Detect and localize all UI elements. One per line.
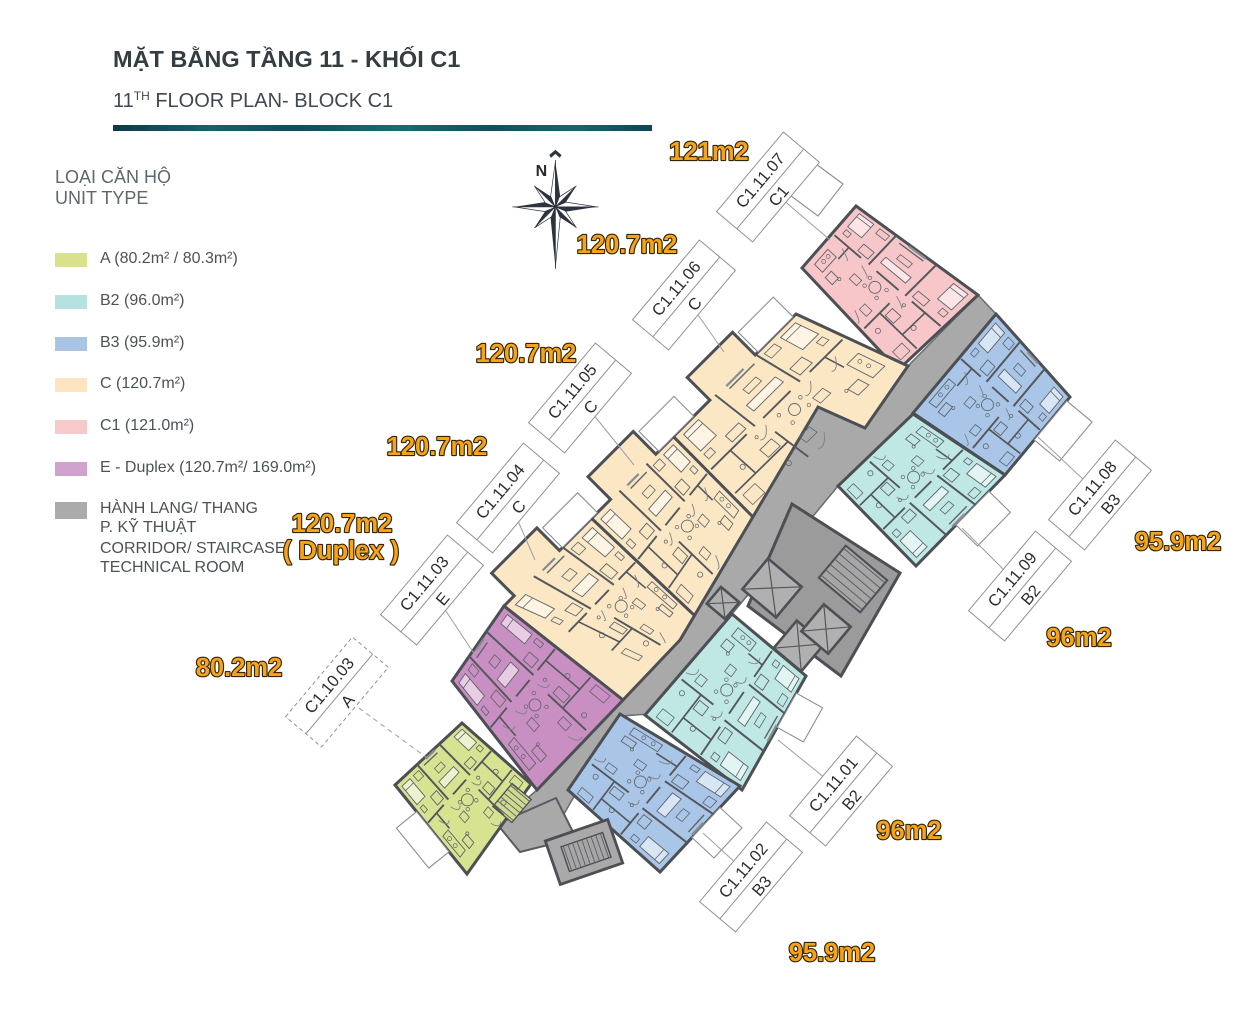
svg-text:95.9m2: 95.9m2 bbox=[1135, 528, 1222, 556]
svg-text:96m2: 96m2 bbox=[1046, 624, 1111, 652]
svg-text:120.7m2: 120.7m2 bbox=[292, 510, 393, 538]
svg-text:96m2: 96m2 bbox=[876, 817, 941, 845]
svg-text:120.7m2: 120.7m2 bbox=[387, 433, 488, 461]
svg-text:121m2: 121m2 bbox=[669, 138, 748, 166]
svg-text:( Duplex ): ( Duplex ) bbox=[283, 537, 399, 565]
svg-text:80.2m2: 80.2m2 bbox=[196, 654, 283, 682]
svg-text:95.9m2: 95.9m2 bbox=[789, 939, 876, 967]
svg-text:120.7m2: 120.7m2 bbox=[577, 231, 678, 259]
svg-text:120.7m2: 120.7m2 bbox=[476, 340, 577, 368]
svg-text:N: N bbox=[536, 163, 548, 180]
